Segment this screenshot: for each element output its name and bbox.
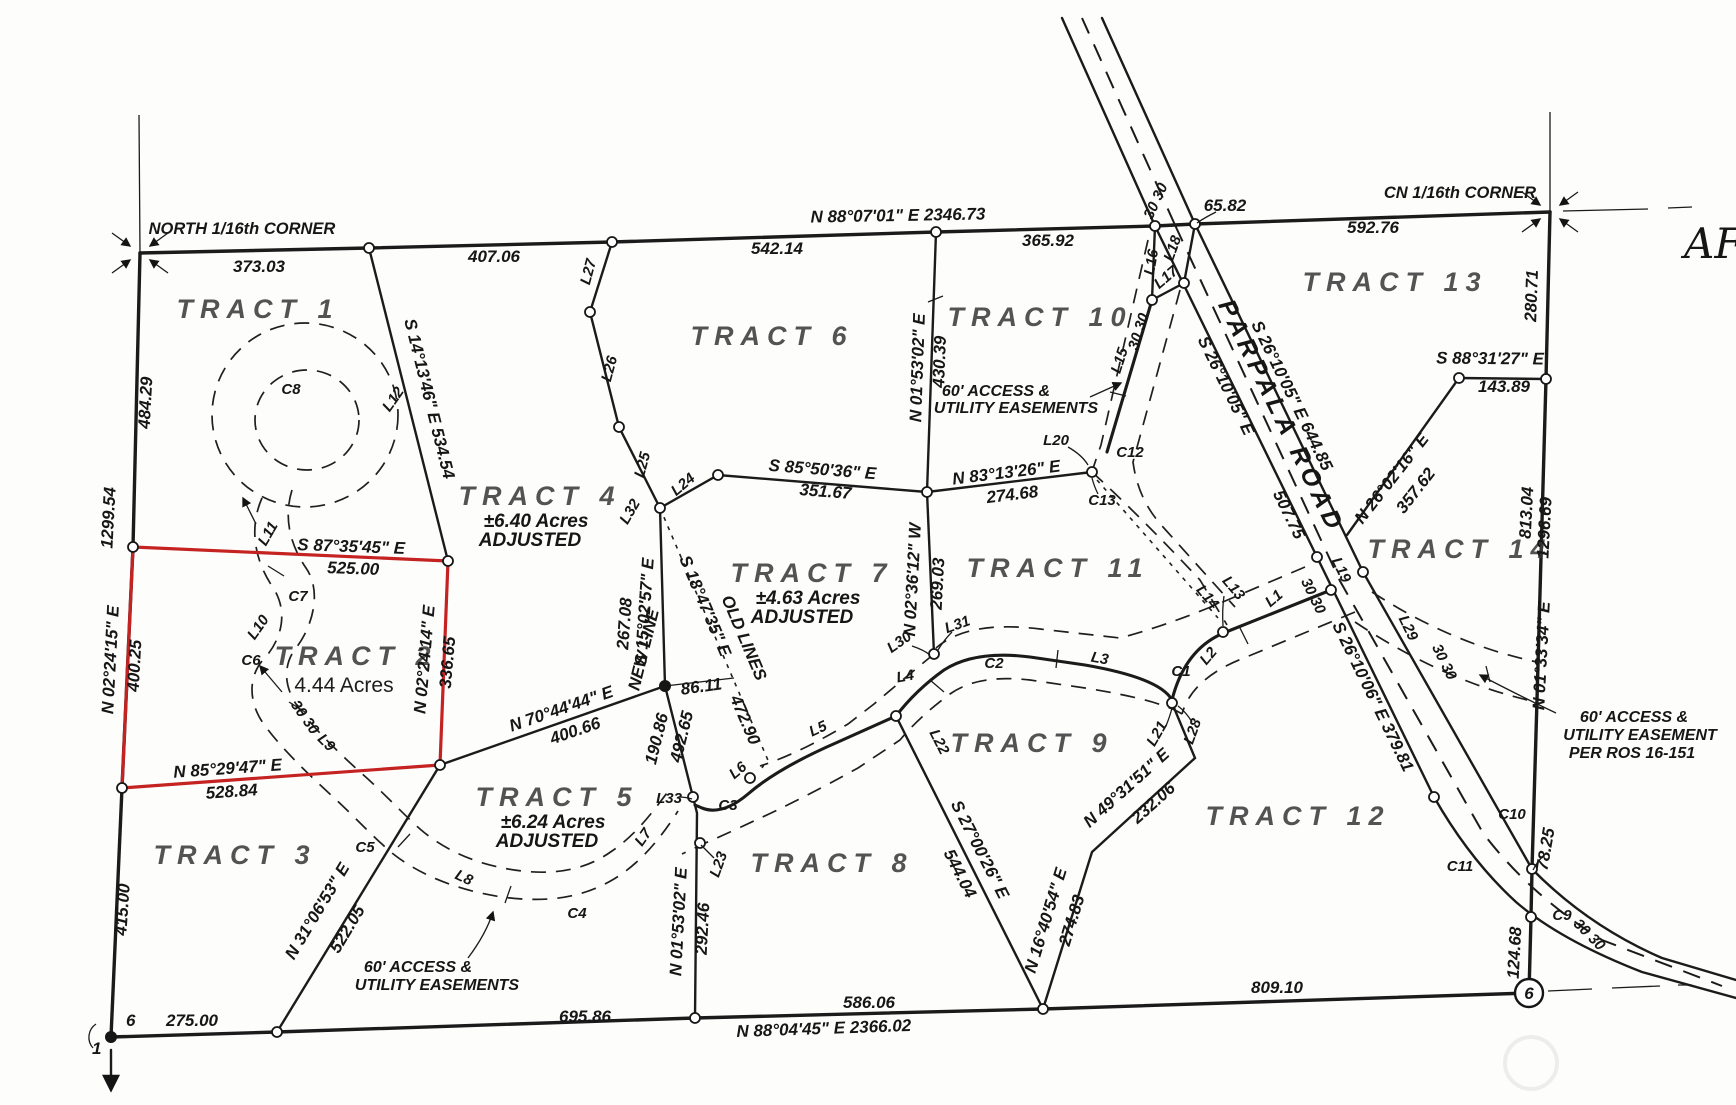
- monument-point: [929, 649, 939, 659]
- section-number-1: 1: [92, 1039, 101, 1058]
- plat-drawing: NORTH 1/16th CORNER CN 1/16th CORNER AFF…: [0, 0, 1736, 1105]
- line-l20: L20: [1043, 432, 1070, 449]
- tract7-label: TRACT 7: [731, 558, 894, 588]
- easement-note-tract3-2: UTILITY EASEMENTS: [355, 977, 519, 994]
- monument-point: [272, 1027, 282, 1037]
- bearing-s8550: S 85°50'36" E: [768, 456, 878, 483]
- monument-point: [1190, 219, 1200, 229]
- monument-point: [1454, 373, 1464, 383]
- curve-c1: C1: [1171, 663, 1190, 680]
- dim-484: 484.29: [135, 376, 157, 430]
- line-l24: L24: [668, 469, 699, 499]
- tract13-label: TRACT 13: [1302, 267, 1487, 297]
- dim-373: 373.03: [233, 257, 286, 276]
- monument-point: [1150, 221, 1160, 231]
- tract5-acres: ±6.24 Acres: [501, 812, 606, 833]
- line-l4: L4: [895, 667, 916, 687]
- dim-695: 695.86: [559, 1007, 612, 1026]
- dim-415: 415.00: [111, 882, 134, 937]
- tract14-easement-north: [1372, 592, 1537, 662]
- line-l11: L11: [255, 519, 282, 549]
- dim-507: 507.75: [1269, 487, 1309, 543]
- dim-522: 522.05: [326, 902, 369, 957]
- road-heavy-east-3: [695, 716, 896, 810]
- curve-c8: C8: [281, 381, 301, 398]
- dim-292: 292.46: [692, 902, 714, 956]
- curve-c3: C3: [718, 797, 738, 814]
- curve-c9: C9: [1552, 907, 1572, 924]
- tract3-label: TRACT 3: [154, 840, 317, 870]
- road-flow-arrow: [243, 498, 256, 524]
- monument-point: [713, 470, 723, 480]
- labels: NORTH 1/16th CORNER CN 1/16th CORNER AFF…: [92, 180, 1736, 1058]
- monument-point: [931, 227, 941, 237]
- monument-point: [1087, 467, 1097, 477]
- dim-78: 78.25: [1533, 826, 1559, 872]
- monument-point: [922, 487, 932, 497]
- dim-1299: 1299.54: [97, 486, 119, 549]
- dim-592: 592.76: [1347, 218, 1400, 237]
- scan-artifact-circle: [1505, 1037, 1557, 1089]
- line-l25: L25: [631, 450, 654, 480]
- bearing-top: N 88°07'01" E 2346.73: [810, 204, 986, 226]
- monument-point: [614, 422, 624, 432]
- tract10-label: TRACT 10: [947, 302, 1132, 332]
- tract2-5-line: [440, 686, 665, 765]
- curve-c13: C13: [1088, 492, 1116, 509]
- parpala-east-line-north: [1102, 18, 1195, 224]
- tract7-acres: ±4.63 Acres: [756, 588, 861, 609]
- line-l31: L31: [942, 612, 972, 637]
- line-l10: L10: [244, 611, 273, 642]
- dim-274-68: 274.68: [984, 482, 1039, 507]
- line-l33: L33: [656, 790, 683, 807]
- dim-336: 336.65: [436, 635, 460, 689]
- dim-525: 525.00: [327, 558, 380, 579]
- line-l1: L1: [1262, 586, 1286, 610]
- cn-corner-cross-arrows: [1560, 192, 1578, 205]
- monument-point: [117, 783, 127, 793]
- dim-269: 269.03: [927, 557, 949, 611]
- bearing-bottom: N 88°04'45" E 2366.02: [736, 1016, 912, 1041]
- curve-c5: C5: [355, 839, 375, 856]
- monument-point: [1167, 698, 1177, 708]
- monument-point: [690, 1013, 700, 1023]
- dim-1296: 1296.69: [1533, 496, 1555, 559]
- line-l19: L19: [1328, 555, 1355, 586]
- station-tick: [398, 834, 410, 847]
- monument-point: [1179, 278, 1189, 288]
- bearing-n0133: N 01°33'34" E: [1529, 600, 1554, 710]
- bearing-n0153a: N 01°53'02" E: [906, 313, 929, 423]
- nw-corner-cross-arrows: [112, 260, 130, 273]
- leader-l20: [1068, 447, 1088, 465]
- curve-c7: C7: [288, 588, 308, 605]
- road-width-30-30: 30 30: [1428, 641, 1460, 683]
- monument-point: [607, 237, 617, 247]
- line-l14: L14: [1193, 582, 1223, 613]
- tract2-acres: 4.44 Acres: [294, 674, 393, 697]
- bearing-s8735: S 87°35'45" E: [297, 535, 406, 558]
- monument-point: [688, 792, 698, 802]
- dim-86: 86.11: [679, 674, 723, 699]
- bearing-n0236: N 02°36'12" W: [900, 521, 925, 637]
- easement-note-tract14-1: 60' ACCESS &: [1580, 709, 1688, 726]
- monument-point: [1541, 374, 1551, 384]
- road-heavy-east-1: [1172, 590, 1331, 700]
- line-l22: L22: [926, 727, 953, 758]
- easement-note-tract10-1: 60' ACCESS &: [942, 383, 1050, 400]
- curve-c2: C2: [984, 655, 1004, 672]
- tract12-label: TRACT 12: [1205, 801, 1390, 831]
- dim-586: 586.06: [843, 993, 896, 1012]
- parpala-west-line-north: [1062, 18, 1155, 226]
- tract8-9-divider: [896, 716, 1043, 1009]
- leader-l30: [912, 646, 930, 655]
- culdesac-outer-dashed: [212, 323, 398, 507]
- dim-351: 351.67: [799, 480, 854, 503]
- tract9-label: TRACT 9: [951, 728, 1114, 758]
- tract5-adjusted: ADJUSTED: [495, 831, 599, 852]
- line-l27: L27: [577, 257, 600, 287]
- monument-point: [1326, 585, 1336, 595]
- aff-partial-text: AFF: [1680, 219, 1736, 268]
- monument-point: [655, 503, 665, 513]
- easement-arrow-tract3: [468, 912, 493, 958]
- monument-point-found: [105, 1031, 117, 1043]
- dim-430: 430.39: [929, 335, 950, 389]
- easement-note-tract14-2: UTILITY EASEMENT: [1563, 727, 1718, 744]
- tract8-label: TRACT 8: [751, 848, 914, 878]
- station-tick: [1240, 628, 1248, 644]
- tract2-label: TRACT 2: [275, 641, 438, 671]
- line-l9: L9: [314, 731, 339, 756]
- monument-point: [1358, 567, 1368, 577]
- easement-arrow-tract10: [1090, 383, 1121, 397]
- monument-point: [364, 243, 374, 253]
- tract7-adjusted: ADJUSTED: [750, 607, 854, 628]
- tract1-label: TRACT 1: [177, 294, 340, 324]
- bearing-n0224-15: N 02°24'15" E: [98, 604, 123, 714]
- tract5-label: TRACT 5: [476, 782, 639, 812]
- dim-143: 143.89: [1478, 377, 1531, 396]
- monument-point: [1218, 627, 1228, 637]
- tract4-acres: ±6.40 Acres: [484, 511, 589, 532]
- road-south-edge-dashed-2: [682, 679, 1182, 854]
- monument-point: [1038, 1004, 1048, 1014]
- monument-point: [1429, 792, 1439, 802]
- line-l15: L15: [1108, 345, 1132, 375]
- monument-point: [1312, 552, 1322, 562]
- cn-corner-cross-arrows: [1522, 219, 1540, 232]
- curve-c12: C12: [1116, 444, 1144, 461]
- curve-c4: C4: [567, 905, 587, 922]
- survey-plat-map: NORTH 1/16th CORNER CN 1/16th CORNER AFF…: [0, 0, 1736, 1105]
- dim-365: 365.92: [1022, 231, 1075, 250]
- dim-809: 809.10: [1251, 978, 1304, 997]
- cn-corner-cross-arrows: [1560, 219, 1578, 232]
- bearing-n0153b: N 01°53'02" E: [666, 866, 691, 976]
- dim-275: 275.00: [165, 1011, 219, 1030]
- station-tick: [928, 296, 943, 302]
- nw-corner-cross-arrows: [112, 233, 130, 246]
- tract4-7-north-line: [660, 475, 927, 508]
- easement-note-tract14-3: PER ROS 16-151: [1569, 745, 1695, 762]
- monument-point: [443, 556, 453, 566]
- circled-6-label: 6: [1524, 984, 1534, 1003]
- dim-65: 65.82: [1204, 196, 1247, 215]
- tract11-label: TRACT 11: [966, 553, 1149, 583]
- station-tick: [930, 680, 944, 692]
- dim-407: 407.06: [467, 247, 521, 266]
- tract6-label: TRACT 6: [691, 321, 854, 351]
- monument-point: [891, 711, 901, 721]
- curve-c6: C6: [241, 652, 261, 669]
- section-line-east-of-cn: [1563, 207, 1692, 211]
- bearing-n8313: N 83°13'26" E: [951, 456, 1062, 488]
- road-width-30-30: 30 30: [1297, 575, 1329, 617]
- tract4-7-west-line: [660, 508, 665, 686]
- section-line-above-nw: [139, 115, 140, 253]
- easement-note-tract10-2: UTILITY EASEMENTS: [934, 400, 1098, 417]
- road-width-30-30: 30 30: [287, 697, 323, 738]
- north-corner-label: NORTH 1/16th CORNER: [149, 220, 336, 238]
- line-l29: L29: [1395, 613, 1422, 644]
- station-tick: [505, 886, 511, 903]
- curve-c10: C10: [1498, 806, 1526, 823]
- station-tick: [268, 566, 284, 576]
- line-l3: L3: [1090, 649, 1111, 669]
- monument-point: [1147, 295, 1157, 305]
- easement-note-tract3-1: 60' ACCESS &: [364, 959, 472, 976]
- nw-corner-cross-arrows: [150, 260, 168, 273]
- tract4-label: TRACT 4: [459, 481, 622, 511]
- curve-c11: C11: [1447, 858, 1473, 875]
- monument-point-found: [659, 680, 671, 692]
- dim-280: 280.71: [1521, 269, 1542, 323]
- bearing-s8831: S 88°31'27" E: [1436, 349, 1545, 369]
- dim-542: 542.14: [751, 239, 804, 258]
- tract4-adjusted: ADJUSTED: [478, 530, 582, 551]
- circled6-east-dashes: [1548, 985, 1692, 991]
- section-number-6: 6: [126, 1011, 136, 1030]
- monument-point: [435, 760, 445, 770]
- dim-124: 124.68: [1504, 926, 1526, 979]
- monument-point: [128, 542, 138, 552]
- cn-corner-label: CN 1/16th CORNER: [1384, 184, 1536, 202]
- dim-472: 472.90: [726, 691, 764, 748]
- monument-point: [1526, 912, 1536, 922]
- monument-point: [585, 307, 595, 317]
- bearing-s1413: S 14°13'46" E 534.54: [400, 317, 458, 482]
- line-l8: L8: [452, 867, 476, 890]
- monument-point: [695, 838, 705, 848]
- dim-400-25: 400.25: [124, 639, 146, 693]
- dim-528: 528.84: [205, 780, 259, 803]
- leader-l21: [1166, 708, 1172, 726]
- line-l28: L28: [1180, 716, 1205, 747]
- culdesac-inner-dashed: [255, 370, 359, 470]
- station-tick: [1056, 650, 1058, 668]
- dim-267: 267.08: [613, 596, 636, 651]
- leader-l13: [1223, 596, 1224, 626]
